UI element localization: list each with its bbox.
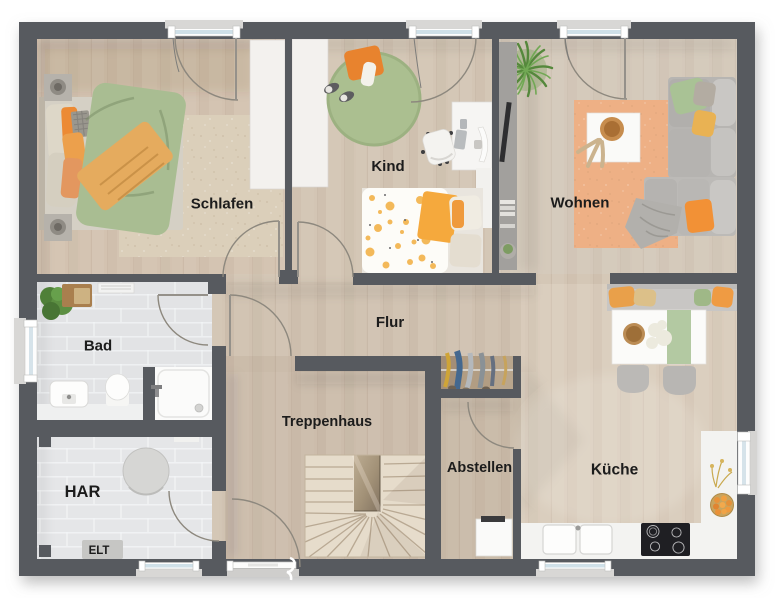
svg-text:Schlafen: Schlafen: [191, 196, 254, 213]
svg-text:Küche: Küche: [591, 462, 639, 479]
svg-text:HAR: HAR: [65, 483, 101, 501]
svg-text:Abstellen: Abstellen: [447, 460, 512, 476]
svg-text:Flur: Flur: [376, 314, 404, 331]
svg-text:Bad: Bad: [84, 338, 112, 355]
svg-text:Treppenhaus: Treppenhaus: [282, 414, 372, 430]
svg-text:Wohnen: Wohnen: [551, 195, 610, 212]
svg-text:Kind: Kind: [371, 158, 404, 175]
svg-text:ELT: ELT: [89, 545, 110, 557]
